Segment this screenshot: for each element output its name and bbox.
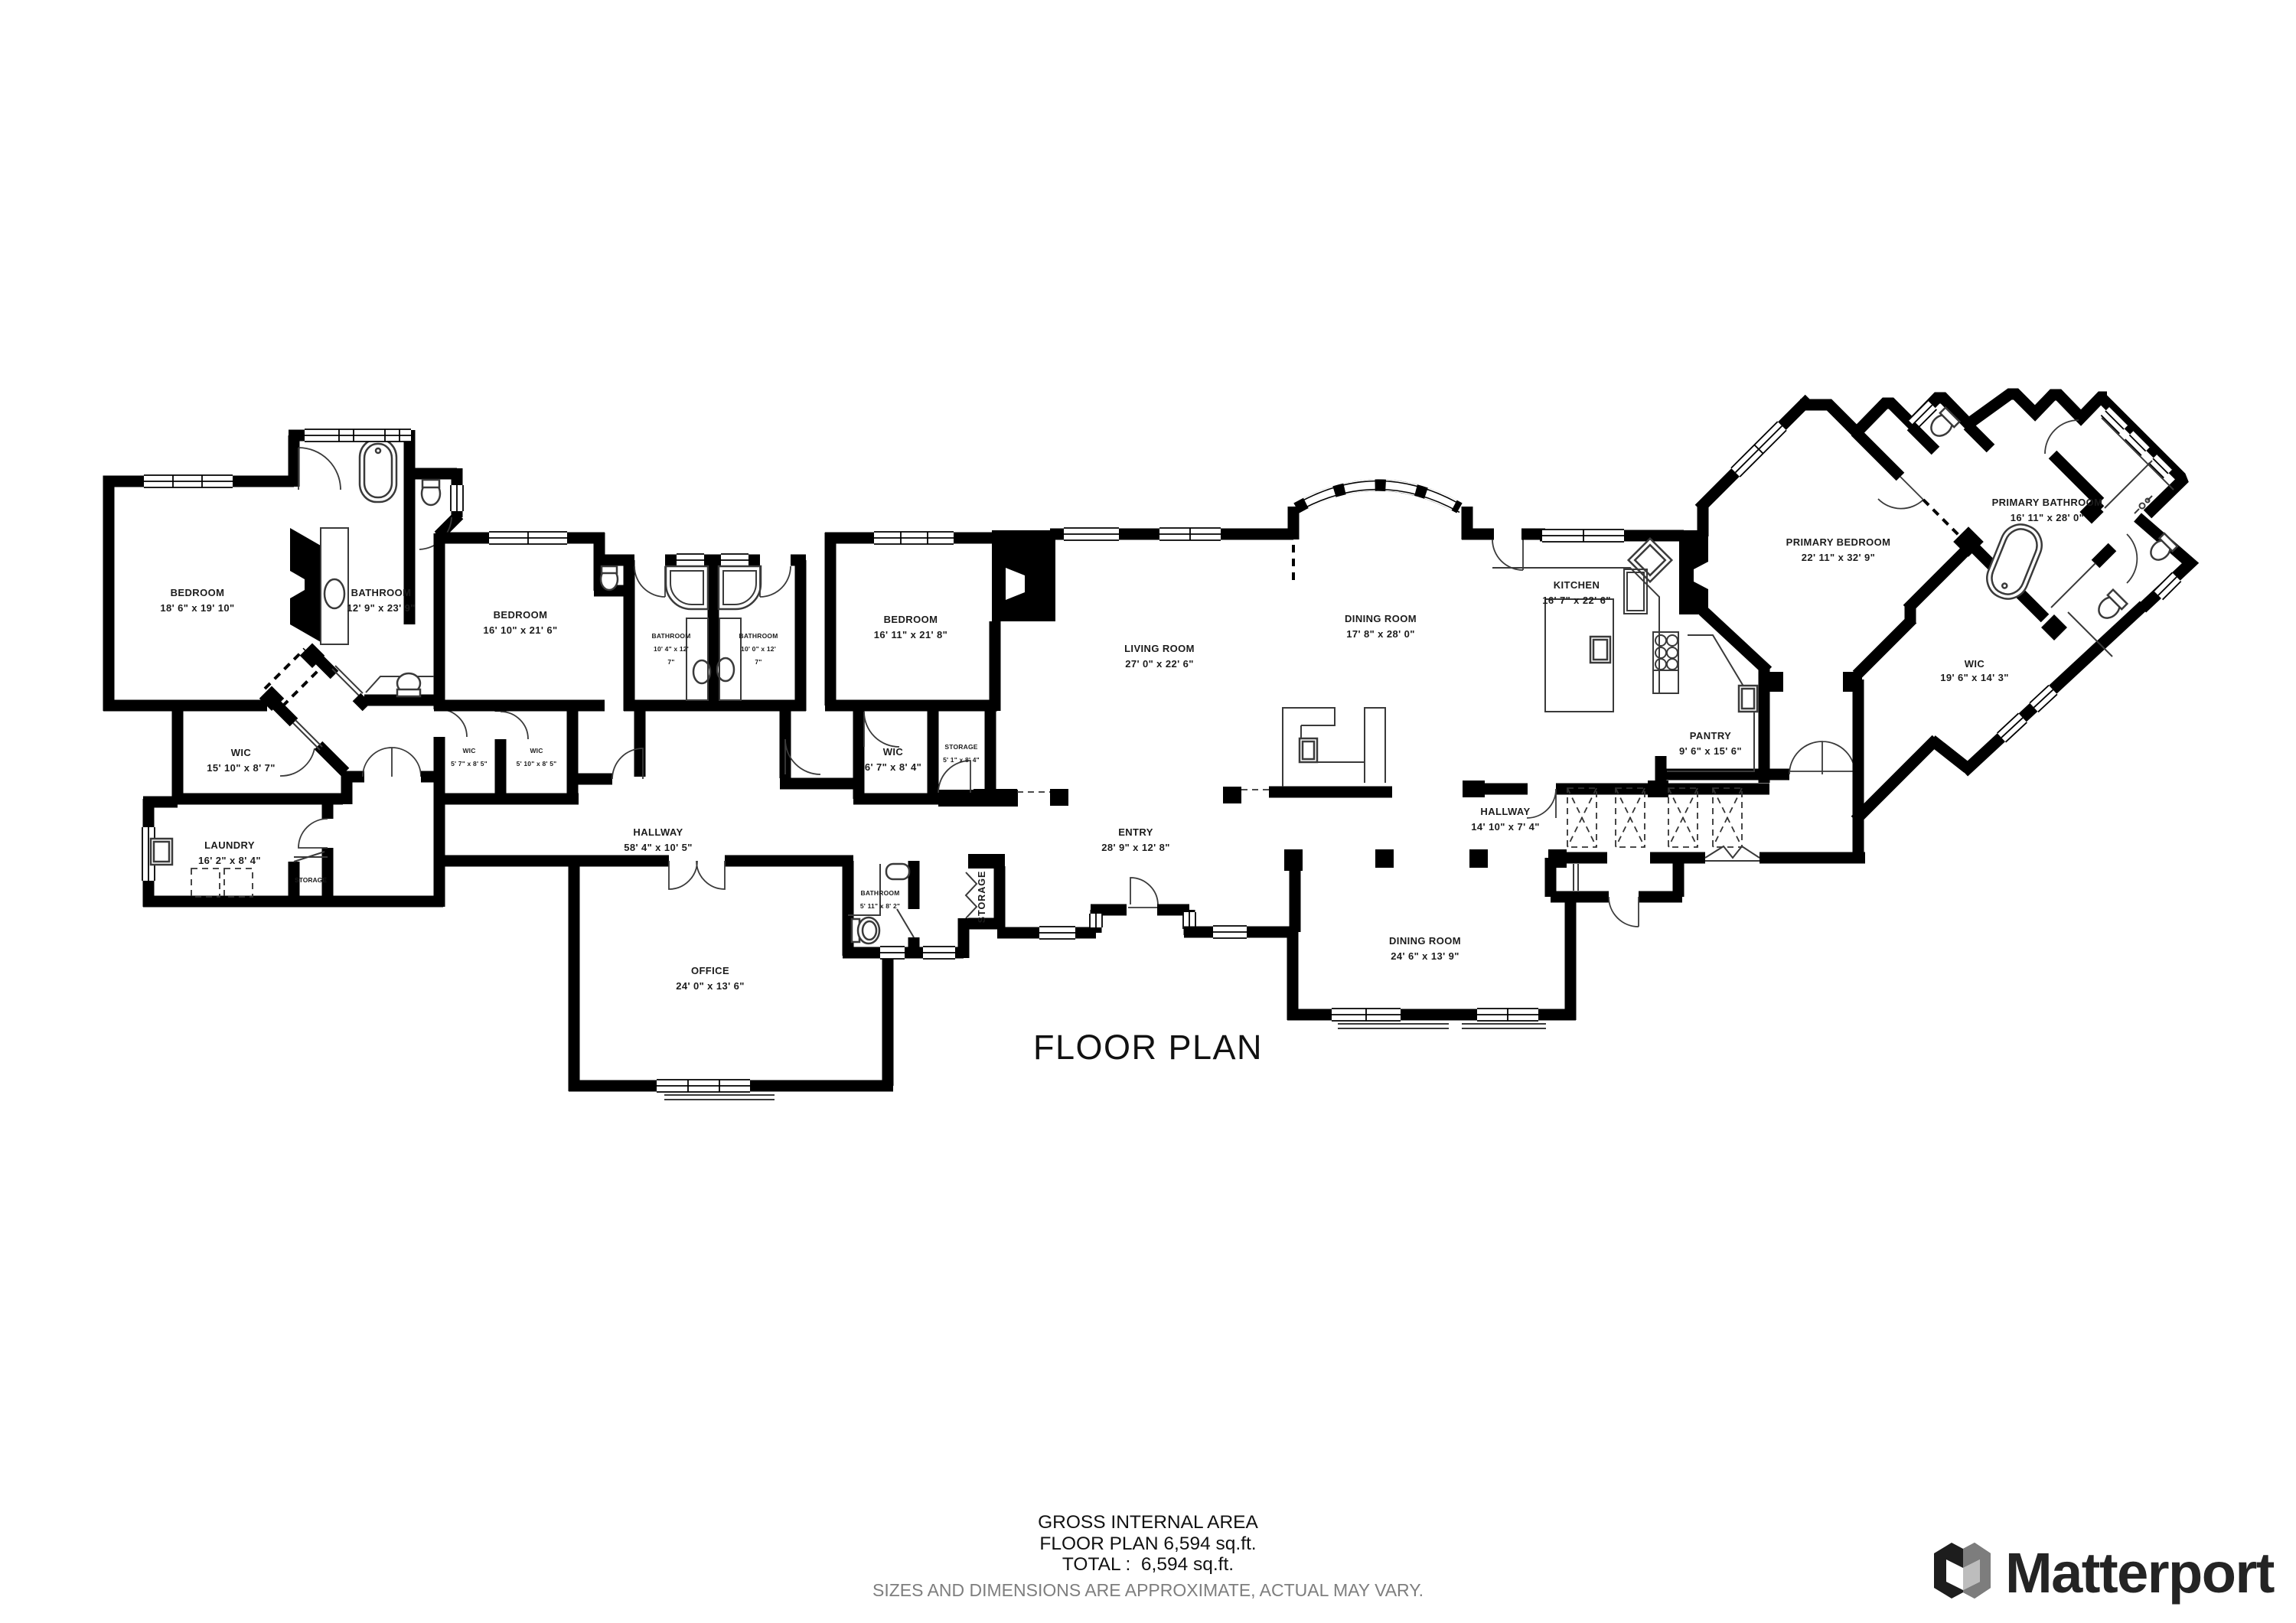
svg-text:WIC: WIC [462,747,475,754]
svg-text:7": 7" [667,658,674,666]
svg-text:BEDROOM: BEDROOM [494,609,548,621]
svg-text:7": 7" [755,658,762,666]
svg-text:OFFICE: OFFICE [691,965,729,976]
svg-text:14' 10" x 7' 4": 14' 10" x 7' 4" [1471,821,1540,833]
svg-text:24' 6" x 13' 9": 24' 6" x 13' 9" [1391,950,1459,962]
svg-text:ENTRY: ENTRY [1118,826,1153,838]
svg-text:LAUNDRY: LAUNDRY [204,839,255,851]
svg-text:GROSS INTERNAL AREA: GROSS INTERNAL AREA [1038,1512,1258,1533]
svg-text:WIC: WIC [883,746,904,758]
svg-text:9' 6" x 15' 6": 9' 6" x 15' 6" [1679,745,1742,757]
svg-text:PANTRY: PANTRY [1690,730,1731,741]
svg-text:BEDROOM: BEDROOM [171,587,225,598]
svg-text:24' 0" x 13' 6": 24' 0" x 13' 6" [676,980,745,992]
svg-text:BATHROOM: BATHROOM [351,587,412,598]
svg-text:5' 1" x 8' 4": 5' 1" x 8' 4" [943,756,980,764]
svg-text:12' 9" x 23' 9": 12' 9" x 23' 9" [347,602,416,614]
svg-text:22' 11" x 32' 9": 22' 11" x 32' 9" [1802,552,1875,563]
svg-text:BATHROOM: BATHROOM [651,632,690,640]
svg-text:16' 11" x 28' 0": 16' 11" x 28' 0" [2011,512,2084,523]
svg-text:5' 11" x 8' 2": 5' 11" x 8' 2" [860,902,900,910]
svg-text:DINING ROOM: DINING ROOM [1345,613,1417,624]
svg-text:18' 6" x 19' 10": 18' 6" x 19' 10" [160,602,234,614]
svg-text:FLOOR PLAN 6,594 sq.ft.: FLOOR PLAN 6,594 sq.ft. [1039,1533,1256,1554]
svg-text:TOTAL : 6,594 sq.ft.: TOTAL : 6,594 sq.ft. [1062,1554,1234,1575]
svg-text:BATHROOM: BATHROOM [739,632,778,640]
svg-text:58' 4" x 10' 5": 58' 4" x 10' 5" [624,842,693,853]
svg-text:STORAGE: STORAGE [295,876,327,884]
svg-text:16' 2" x 8' 4": 16' 2" x 8' 4" [198,855,261,866]
svg-text:WIC: WIC [1965,658,1985,670]
svg-text:19' 6" x 14' 3": 19' 6" x 14' 3" [1940,672,2009,683]
svg-text:BEDROOM: BEDROOM [884,614,938,625]
svg-text:10' 0" x 12': 10' 0" x 12' [741,645,776,653]
svg-text:15' 10" x 8' 7": 15' 10" x 8' 7" [207,762,276,774]
svg-text:16' 11" x 21' 8": 16' 11" x 21' 8" [874,629,947,640]
svg-text:DINING ROOM: DINING ROOM [1389,935,1461,947]
svg-text:16' 10" x 21' 6": 16' 10" x 21' 6" [483,624,557,636]
svg-text:PRIMARY BATHROOM: PRIMARY BATHROOM [1992,497,2103,508]
svg-text:5' 10" x 8' 5": 5' 10" x 8' 5" [517,760,557,768]
svg-text:KITCHEN: KITCHEN [1554,579,1600,591]
svg-text:PRIMARY BEDROOM: PRIMARY BEDROOM [1786,536,1891,548]
svg-text:FLOOR PLAN: FLOOR PLAN [1033,1028,1263,1067]
svg-text:WIC: WIC [231,747,252,758]
svg-text:WIC: WIC [530,747,543,754]
svg-text:5' 7" x 8' 5": 5' 7" x 8' 5" [451,760,488,768]
svg-text:6' 7" x 8' 4": 6' 7" x 8' 4" [865,761,921,773]
svg-text:SIZES AND DIMENSIONS ARE APPRO: SIZES AND DIMENSIONS ARE APPROXIMATE, AC… [872,1580,1424,1600]
svg-text:STORAGE: STORAGE [944,743,977,751]
svg-text:17' 8" x 28' 0": 17' 8" x 28' 0" [1346,628,1415,640]
svg-text:10' 4" x 12': 10' 4" x 12' [654,645,689,653]
svg-text:27' 0" x 22' 6": 27' 0" x 22' 6" [1125,658,1194,670]
svg-text:28' 9" x 12' 8": 28' 9" x 12' 8" [1101,842,1170,853]
svg-text:Matterport: Matterport [2005,1541,2275,1605]
svg-text:HALLWAY: HALLWAY [633,826,683,838]
svg-text:STORAGE: STORAGE [977,871,987,924]
svg-text:16' 7" x 22' 6": 16' 7" x 22' 6" [1542,595,1611,606]
svg-text:BATHROOM: BATHROOM [860,889,899,897]
svg-text:LIVING ROOM: LIVING ROOM [1124,643,1195,654]
svg-text:HALLWAY: HALLWAY [1480,806,1530,817]
